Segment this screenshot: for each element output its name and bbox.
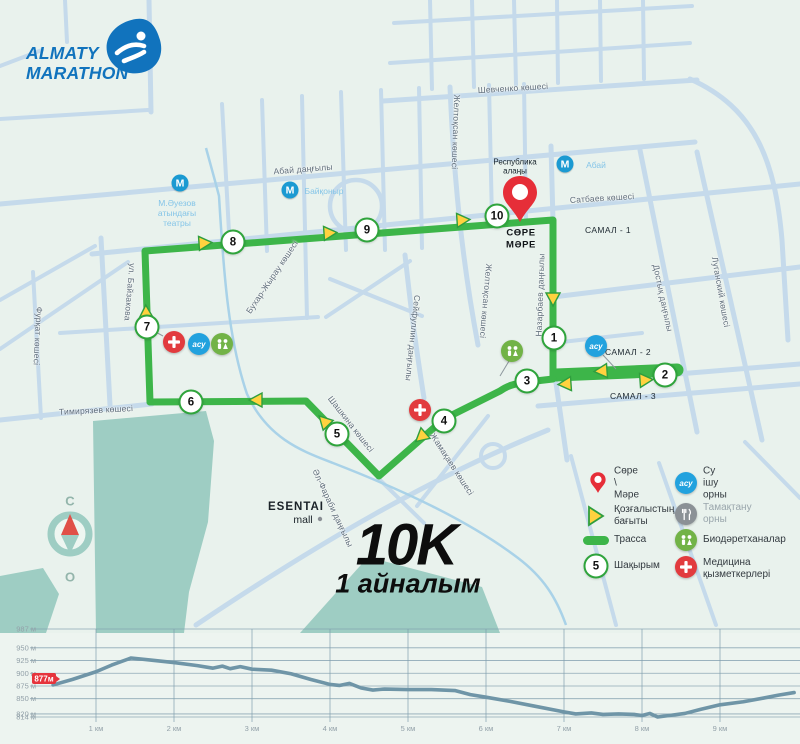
route-map-poster: Шевченко көшесі Абай даңғылы Сатбаев көш…: [0, 0, 800, 744]
chart-xtick-label: 9 км: [713, 724, 728, 733]
chart-ytick-label: 987 м: [16, 625, 36, 634]
chart-xtick-label: 1 км: [89, 724, 104, 733]
chart-ytick-label: 950 м: [16, 643, 36, 652]
chart-xtick-label: 8 км: [635, 724, 650, 733]
start-elevation-label: 877м: [34, 675, 53, 684]
chart-xtick-label: 6 км: [479, 724, 494, 733]
start-elevation-badge-pointer: [56, 676, 60, 682]
chart-ytick-label: 850 м: [16, 694, 36, 703]
chart-xtick-label: 4 км: [323, 724, 338, 733]
chart-xtick-label: 7 км: [557, 724, 572, 733]
chart-xtick-label: 5 км: [401, 724, 416, 733]
elevation-line: [53, 658, 794, 717]
chart-ytick-label: 925 м: [16, 656, 36, 665]
chart-ytick-label: 814 м: [16, 713, 36, 722]
chart-xtick-label: 2 км: [167, 724, 182, 733]
elevation-profile-chart: 987 м950 м925 м900 м875 м850 м820 м814 м…: [0, 0, 800, 744]
chart-xtick-label: 3 км: [245, 724, 260, 733]
